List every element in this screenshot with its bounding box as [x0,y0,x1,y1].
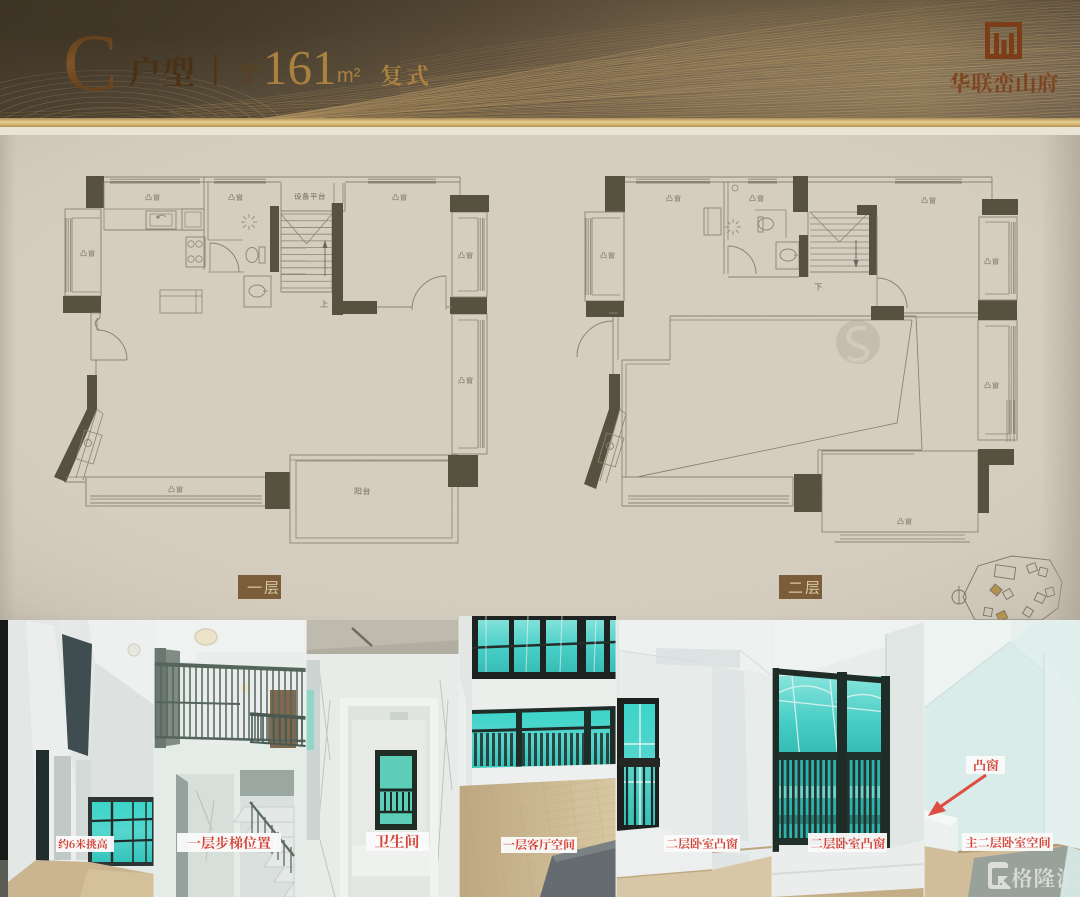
svg-text:161: 161 [263,40,337,95]
svg-text:C: C [63,17,118,108]
svg-text:m²: m² [337,65,361,87]
